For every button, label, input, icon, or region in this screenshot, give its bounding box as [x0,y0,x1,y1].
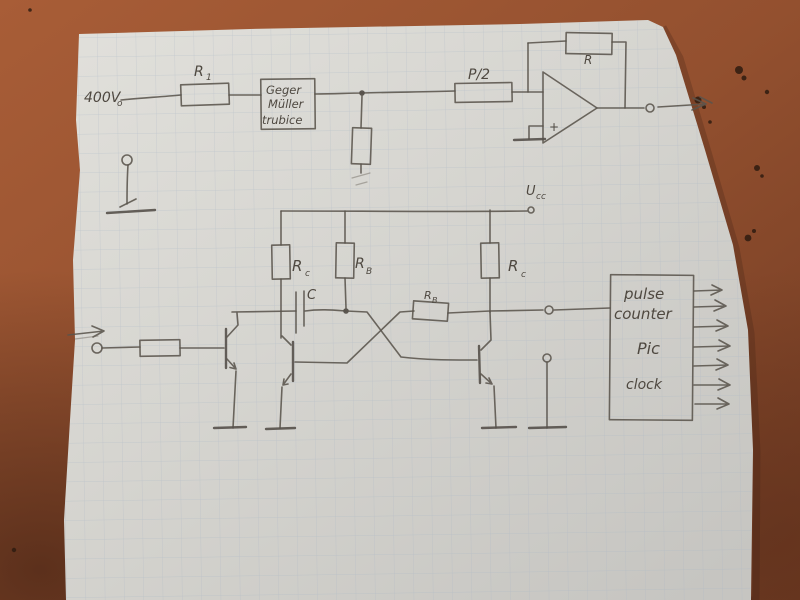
input-wire [102,347,140,348]
opamp-ground-bar [514,139,545,140]
rb-mid-lead-bottom [345,278,346,308]
pulse-counter-line2: counter [614,305,673,323]
resistor-r1-label-sub: 1 [206,73,212,83]
resistor-rc-right-label-sub: c [521,270,526,280]
pulse-counter-line4: clock [626,377,663,393]
resistor-rc-right-label: R [508,257,518,275]
resistor-rb-cross-label-sub: B [432,296,438,305]
resistor-p2-label: P/2 [468,67,490,83]
resistor-feedback-label: R [584,53,592,67]
ucc-label: U [526,184,536,199]
wire-cap-to-junction [305,310,346,311]
pulse-counter-line1: pulse [623,285,664,303]
ground-bar-terminal [529,427,566,428]
ground-bar-right [482,427,516,428]
transistor-right-base-bar [479,346,480,383]
resistor-rc-left-label: R [292,257,302,275]
resistor-r1-label: R [194,64,204,80]
wire-collector-to-cap [232,311,296,312]
opamp-plus-sign: + [549,120,559,134]
geiger-box-line2: Müller [268,97,305,111]
junction-top [359,90,365,96]
geiger-box-line3: trubice [262,113,302,127]
pulse-counter-line3: Pic [637,339,660,358]
photo-of-schematic: 400V o R 1 Geger Müller trubice P/2 [0,0,800,600]
ucc-label-sub: cc [536,192,546,202]
resistor-rc-left-label-sub: c [305,269,310,279]
resistor-rb-cross-label: R [424,289,432,302]
resistor-rb-mid-label-sub: B [366,267,372,277]
geiger-box-line1: Geger [266,83,302,97]
capacitor-label: C [307,288,317,303]
ground-bar-middle [266,428,295,429]
wire-junction-down [361,96,362,128]
ground-bar-left [214,427,246,428]
resistor-rb-mid-label: R [355,256,365,272]
schematic-photo-canvas: 400V o R 1 Geger Müller trubice P/2 [0,0,800,600]
